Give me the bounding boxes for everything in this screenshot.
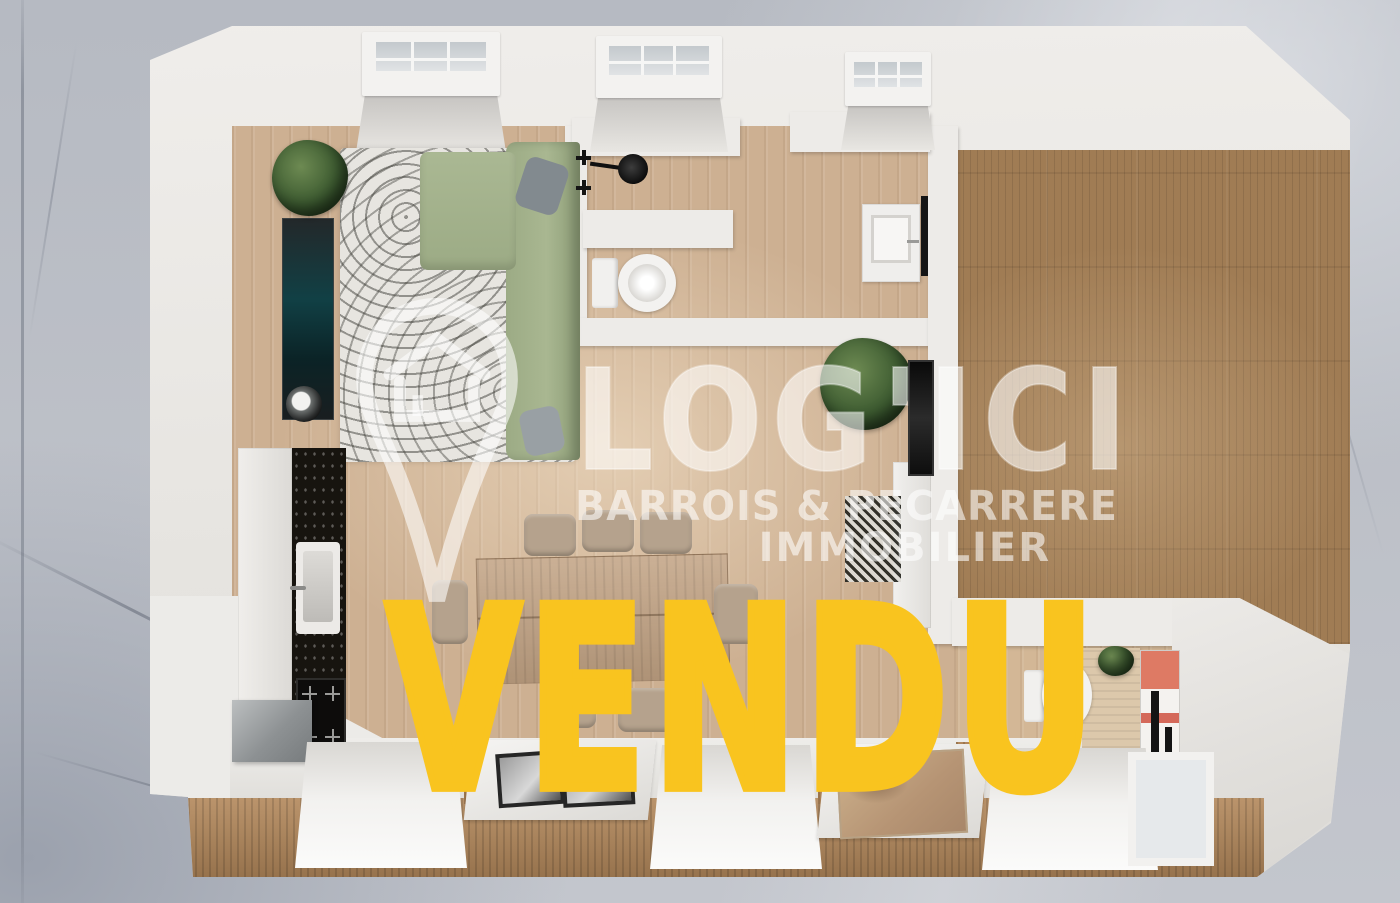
shower-valve-icon — [576, 150, 591, 165]
floorplan-scene: LOG'ICI BARROIS & PECARRERE IMMOBILIER V… — [0, 0, 1400, 903]
dark-mirror-panel — [908, 360, 934, 476]
kitchen-sink — [296, 542, 340, 634]
faucet — [907, 240, 919, 243]
vanity-sink — [871, 215, 911, 263]
window-glass — [854, 62, 923, 87]
window-reveal — [356, 94, 506, 152]
window-north-2 — [596, 36, 722, 98]
burner-cross-icon — [325, 686, 340, 701]
toilet-bowl — [618, 254, 676, 312]
burner-cross-icon — [302, 686, 317, 701]
shower-valve-icon — [576, 180, 591, 195]
bathroom-vanity — [862, 204, 920, 282]
window-glass — [376, 42, 486, 71]
bathroom-half-wall — [583, 210, 733, 248]
sink-bowl — [303, 551, 333, 622]
marble-vein — [29, 42, 78, 339]
window-north-3 — [845, 52, 931, 106]
marble-vein — [21, 0, 24, 903]
kitchen-cabinets — [238, 448, 292, 706]
shower-head — [618, 154, 648, 184]
round-decor-plate — [286, 386, 322, 422]
toilet-seat — [628, 264, 666, 302]
artwork-red-block — [1141, 651, 1179, 689]
sofa-chaise — [420, 152, 516, 270]
dining-chair — [524, 514, 576, 556]
artwork-red-band — [1141, 713, 1179, 723]
window-north-1 — [362, 32, 500, 96]
oven-appliance — [232, 700, 312, 762]
window-reveal — [841, 104, 935, 150]
window-glass — [609, 46, 710, 75]
window-reveal — [590, 96, 728, 152]
faucet — [290, 586, 306, 590]
toilet-tank — [592, 258, 618, 308]
toilet — [592, 254, 676, 312]
burner-cross-icon — [325, 729, 340, 744]
dining-chair — [582, 510, 634, 552]
sold-overlay-label: VENDU — [386, 576, 1102, 827]
dining-chair — [640, 512, 692, 554]
window-bay-south-4 — [1128, 752, 1214, 866]
wall-mirror — [921, 196, 928, 276]
